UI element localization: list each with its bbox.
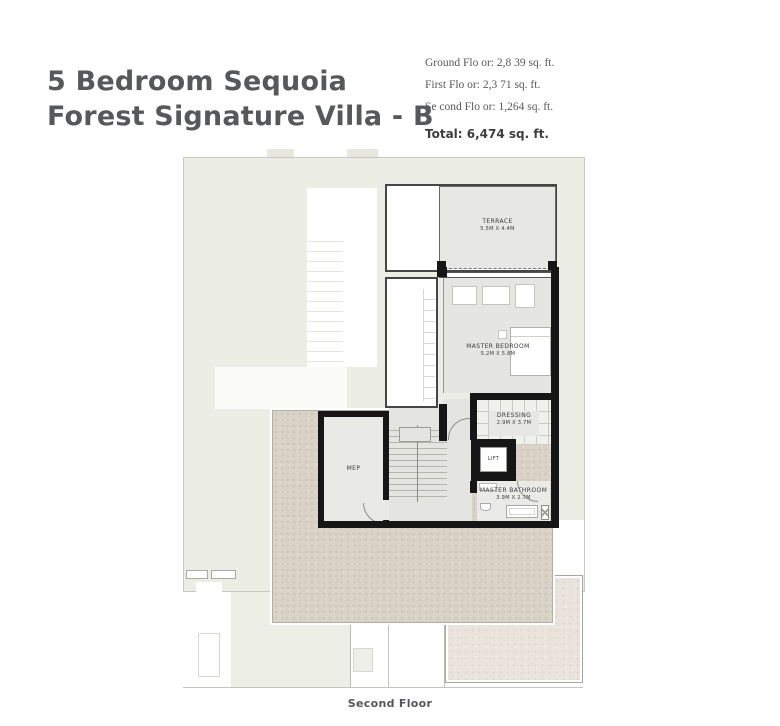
- room-dressing: DRESSING 2.9M X 3.7M: [477, 400, 551, 444]
- wall-dressing-left: [470, 393, 477, 440]
- ghost-divider: [388, 624, 389, 687]
- room-master-bedroom: MASTER BEDROOM 5.2M X 5.8M: [443, 278, 553, 393]
- bathtub: [506, 505, 538, 518]
- ghost-bottom-strip: [350, 623, 445, 688]
- room-terrace: TERRACE 5.5M X 4.4M: [439, 186, 556, 269]
- ghost-room: [307, 188, 377, 232]
- wardrobe: [452, 286, 477, 305]
- room-master-bathroom: MASTER BATHROOM 3.9M X 2.7M: [477, 481, 550, 521]
- bathtub-inner: [509, 508, 535, 515]
- wall-bottom: [318, 521, 559, 528]
- wall-bath-left-stub: [470, 481, 477, 493]
- bed-pillow-line: [511, 328, 550, 337]
- ghost-louvre-roof: [307, 232, 343, 367]
- wall-stub: [439, 404, 447, 441]
- bedroom-door-arc: [448, 418, 470, 440]
- side-table: [498, 330, 507, 339]
- stair-landing: [399, 427, 431, 442]
- mep-name: MEP: [347, 465, 361, 473]
- ghost-room: [215, 367, 347, 409]
- ghost-cell: [353, 648, 373, 672]
- hallway-floor: [443, 399, 472, 409]
- roof-tab: [267, 149, 294, 157]
- bedroom-name: MASTER BEDROOM: [466, 343, 530, 351]
- terrace-label: TERRACE 5.5M X 4.4M: [440, 215, 555, 235]
- ghost-planter: [186, 570, 208, 579]
- mep-label: MEP: [324, 464, 383, 474]
- ghost-white-gap: [553, 520, 584, 575]
- wall-right: [551, 267, 559, 527]
- dressing-label: DRESSING 2.9M X 3.7M: [477, 410, 551, 428]
- room-lift: LIFT: [480, 447, 507, 472]
- page-title: 5 Bedroom Sequoia Forest Signature Villa…: [47, 64, 434, 134]
- stat-first-floor: First Flo or: 2,3 71 sq. ft.: [425, 74, 595, 96]
- ghost-room: [343, 232, 377, 367]
- lift-name: LIFT: [488, 456, 499, 463]
- void-shelf-slats: [423, 289, 435, 401]
- terrace-name: TERRACE: [482, 218, 512, 226]
- roof-tab: [347, 149, 378, 157]
- dressing-name: DRESSING: [497, 412, 531, 420]
- door-arc-curve: [448, 418, 470, 440]
- bedroom-dims: 5.2M X 5.8M: [481, 351, 515, 358]
- ghost-planter: [211, 570, 236, 579]
- ghost-cell: [198, 633, 220, 677]
- wall-bedroom-dressing: [472, 393, 559, 400]
- bathroom-label: MASTER BATHROOM 3.9M X 2.7M: [477, 486, 550, 502]
- shower-box: [541, 505, 549, 520]
- brochure-page: 5 Bedroom Sequoia Forest Signature Villa…: [0, 0, 780, 726]
- dressing-dims: 2.9M X 3.7M: [497, 420, 531, 427]
- wall-stub: [437, 267, 447, 277]
- door-arc-curve: [517, 481, 538, 502]
- floor-caption: Second Floor: [0, 697, 780, 710]
- footprint-bottom-line: [183, 687, 583, 688]
- stat-total: Total: 6,474 sq. ft.: [425, 127, 595, 141]
- wardrobe: [515, 284, 535, 308]
- bathroom-door-arc: [517, 481, 538, 502]
- bedroom-label: MASTER BEDROOM 5.2M X 5.8M: [444, 340, 552, 360]
- title-line-1: 5 Bedroom Sequoia: [47, 64, 434, 99]
- stat-second-floor: Se cond Flo or: 1,264 sq. ft.: [425, 96, 595, 118]
- stat-ground-floor: Ground Flo or: 2,8 39 sq. ft.: [425, 52, 595, 74]
- title-line-2: Forest Signature Villa - B: [47, 99, 434, 134]
- void-room: [385, 277, 438, 408]
- area-stats: Ground Flo or: 2,8 39 sq. ft. First Flo …: [425, 52, 595, 141]
- toilet: [480, 503, 491, 511]
- wardrobe: [482, 286, 510, 305]
- terrace-dims: 5.5M X 4.4M: [480, 226, 514, 233]
